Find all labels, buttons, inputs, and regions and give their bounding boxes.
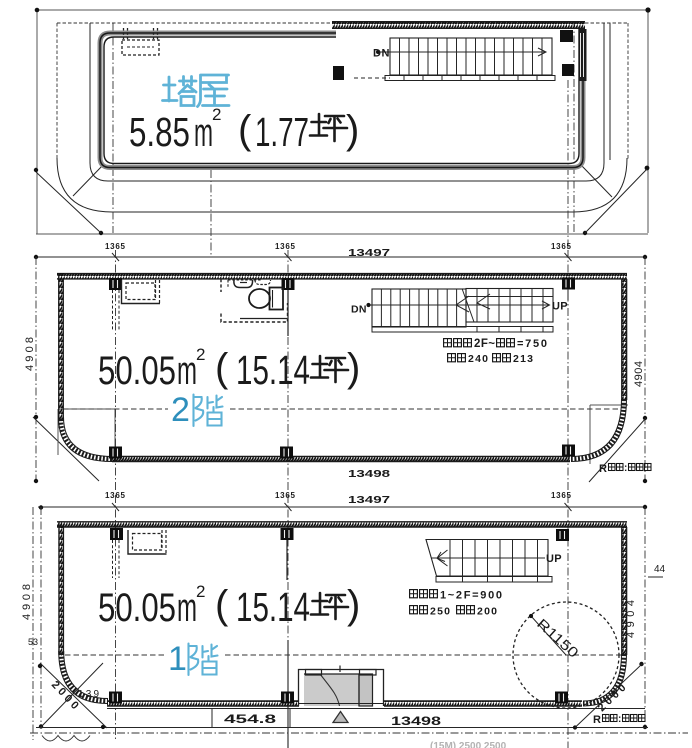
svg-text:UP: UP xyxy=(552,301,568,313)
svg-text:2F~: 2F~ xyxy=(474,338,495,350)
svg-text:240: 240 xyxy=(468,353,488,365)
svg-text::: : xyxy=(618,714,621,725)
svg-text:53: 53 xyxy=(28,637,38,647)
svg-text:13497: 13497 xyxy=(348,494,390,506)
svg-text:1365: 1365 xyxy=(275,491,296,500)
svg-text:): ) xyxy=(347,583,360,627)
svg-text:m: m xyxy=(177,349,197,393)
svg-text:): ) xyxy=(346,108,359,152)
svg-text:1365: 1365 xyxy=(551,242,572,251)
svg-text:200: 200 xyxy=(477,606,497,618)
svg-text:2: 2 xyxy=(196,582,205,601)
svg-text:1365: 1365 xyxy=(105,242,126,251)
svg-text:1365: 1365 xyxy=(551,491,572,500)
svg-text:4908: 4908 xyxy=(24,337,36,371)
svg-text:m: m xyxy=(194,111,213,155)
svg-text:DN: DN xyxy=(351,304,367,316)
svg-text:(: ( xyxy=(215,583,229,627)
svg-text:2: 2 xyxy=(196,345,205,364)
svg-text:R: R xyxy=(593,714,601,726)
svg-text::: : xyxy=(624,463,627,474)
svg-text:2: 2 xyxy=(171,391,190,429)
svg-text:1: 1 xyxy=(168,640,187,678)
svg-text:R: R xyxy=(599,463,607,475)
svg-text:(: ( xyxy=(238,108,252,152)
svg-text:454.8: 454.8 xyxy=(224,712,277,726)
svg-text:5.85: 5.85 xyxy=(129,109,190,155)
svg-text:4904: 4904 xyxy=(633,361,645,387)
svg-text:1365: 1365 xyxy=(275,242,296,251)
svg-text:4908: 4908 xyxy=(21,584,33,620)
svg-text:(: ( xyxy=(215,346,229,390)
svg-text:213: 213 xyxy=(513,353,533,365)
svg-text:13498: 13498 xyxy=(348,468,390,480)
svg-text:=750: =750 xyxy=(517,338,547,350)
svg-text:m: m xyxy=(177,586,197,630)
svg-text:139: 139 xyxy=(78,689,99,700)
svg-text:15.14: 15.14 xyxy=(236,347,310,393)
svg-text:15.14: 15.14 xyxy=(236,584,310,630)
svg-text:R1150: R1150 xyxy=(534,615,582,661)
svg-text:1~2F=900: 1~2F=900 xyxy=(440,590,502,602)
svg-text:): ) xyxy=(347,346,360,390)
svg-text:DN: DN xyxy=(373,48,390,60)
svg-text:UP: UP xyxy=(546,553,562,565)
svg-text:50.05: 50.05 xyxy=(98,349,176,393)
svg-text:44: 44 xyxy=(654,564,666,575)
svg-text:1.77: 1.77 xyxy=(255,109,309,155)
svg-text:13498: 13498 xyxy=(391,714,441,728)
svg-text:2: 2 xyxy=(212,105,221,124)
svg-text:50.05: 50.05 xyxy=(98,586,176,630)
svg-text:250: 250 xyxy=(430,606,450,618)
svg-text:(15M) 2500 2500: (15M) 2500 2500 xyxy=(430,741,507,748)
